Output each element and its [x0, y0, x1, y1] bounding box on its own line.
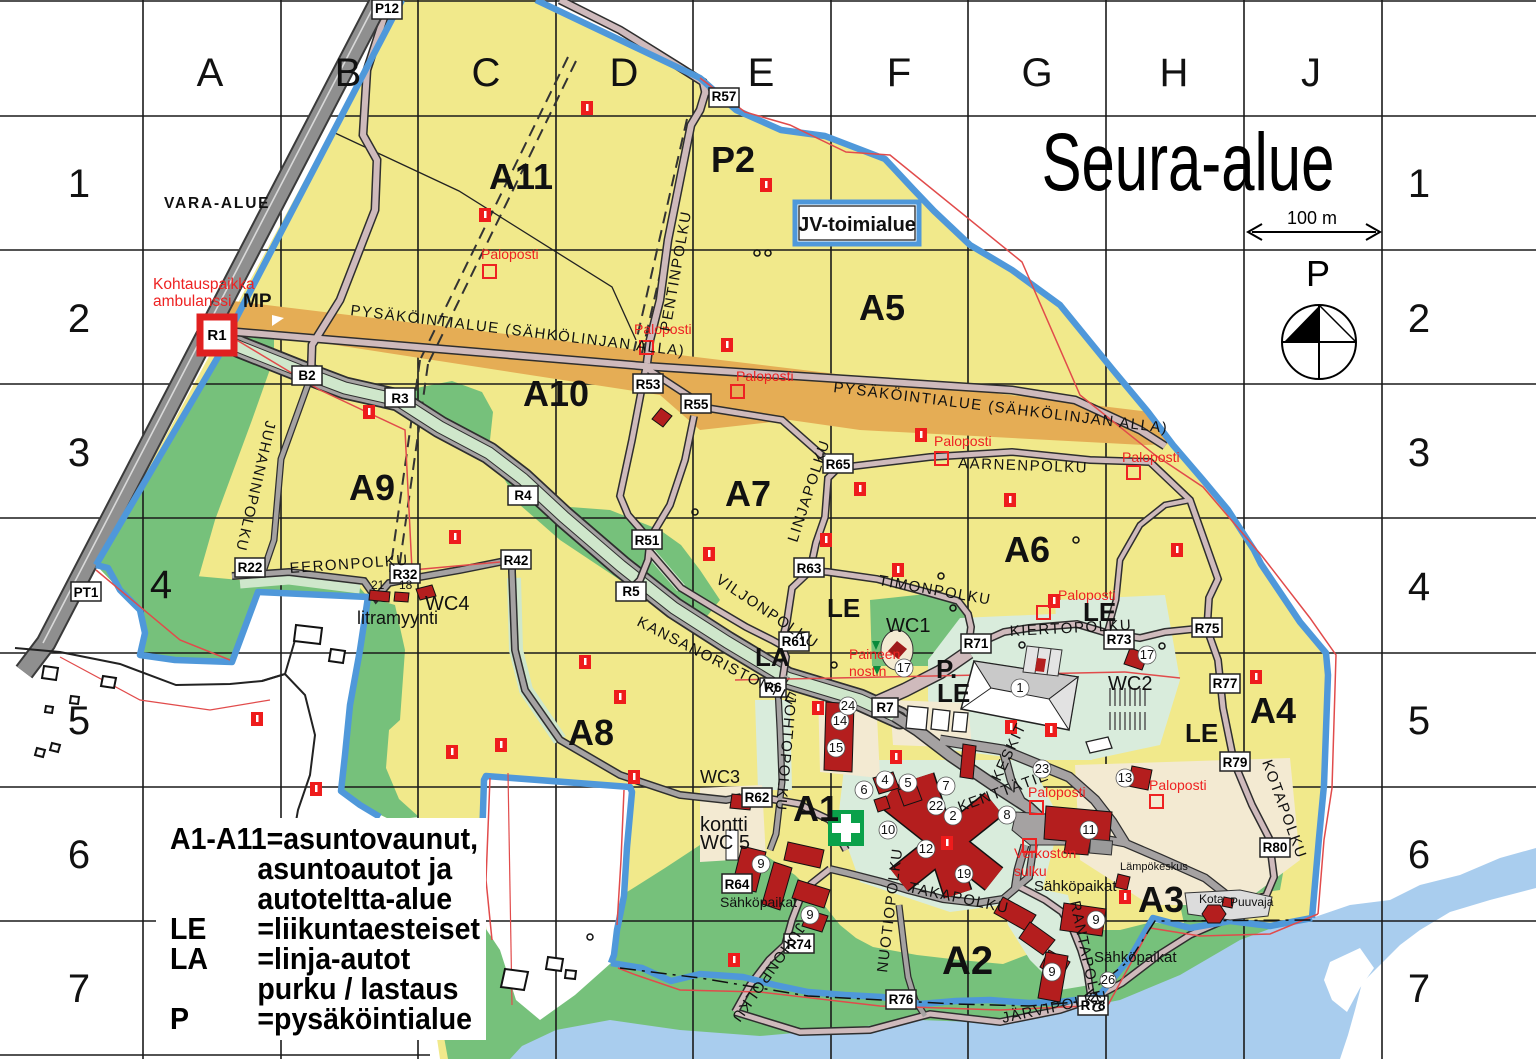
svg-text:6: 6 [68, 833, 90, 877]
svg-text:Lämpökeskus: Lämpökeskus [1120, 861, 1188, 873]
svg-text:B2: B2 [298, 368, 315, 383]
svg-text:2: 2 [1408, 297, 1430, 341]
svg-text:19: 19 [957, 866, 971, 881]
svg-text:JV-toimialue: JV-toimialue [798, 214, 916, 236]
svg-text:ambulanssi: ambulanssi [153, 293, 231, 310]
svg-text:7: 7 [1408, 967, 1430, 1011]
svg-text:kontti: kontti [700, 814, 748, 836]
svg-text:LA: LA [170, 942, 208, 976]
svg-text:1: 1 [1016, 680, 1023, 695]
svg-text:R79: R79 [1223, 755, 1248, 770]
svg-text:J: J [1301, 51, 1321, 95]
svg-text:VARA-ALUE: VARA-ALUE [164, 195, 270, 212]
svg-text:4: 4 [1408, 565, 1430, 609]
svg-text:R42: R42 [504, 553, 529, 568]
svg-text:4: 4 [881, 772, 888, 787]
svg-text:R63: R63 [797, 561, 822, 576]
svg-text:3: 3 [68, 431, 90, 475]
svg-text:22: 22 [929, 798, 943, 813]
svg-text:Kota: Kota [1199, 892, 1224, 906]
svg-text:R75: R75 [1195, 621, 1220, 636]
svg-text:nostin: nostin [849, 663, 886, 679]
svg-text:7: 7 [68, 967, 90, 1011]
svg-text:8: 8 [1003, 807, 1010, 822]
svg-text:LE: LE [1185, 718, 1218, 748]
svg-text:12: 12 [919, 841, 933, 856]
svg-text:15: 15 [829, 740, 843, 755]
svg-text:H: H [1160, 51, 1189, 95]
svg-text:100 m: 100 m [1287, 208, 1337, 228]
svg-text:Paloposti: Paloposti [736, 368, 794, 384]
svg-text:R80: R80 [1263, 840, 1288, 855]
svg-text:R22: R22 [238, 560, 263, 575]
svg-text:Paloposti: Paloposti [1122, 449, 1180, 465]
svg-text:R62: R62 [745, 790, 770, 805]
svg-text:A: A [197, 51, 224, 95]
svg-text:Sähköpaikat: Sähköpaikat [1034, 878, 1117, 895]
svg-text:6: 6 [1408, 833, 1430, 877]
svg-text:6: 6 [860, 782, 867, 797]
svg-text:Paineen: Paineen [849, 646, 900, 662]
svg-text:5: 5 [1408, 699, 1430, 743]
svg-text:Paloposti: Paloposti [1149, 777, 1207, 793]
svg-text:C: C [472, 51, 501, 95]
svg-text:18: 18 [399, 578, 413, 592]
svg-text:E: E [748, 51, 775, 95]
svg-text:R76: R76 [889, 992, 914, 1007]
svg-text:2: 2 [68, 297, 90, 341]
svg-text:A7: A7 [725, 473, 771, 514]
svg-text:D: D [610, 51, 639, 95]
svg-text:Verkoston: Verkoston [1014, 845, 1076, 861]
svg-text:sulku: sulku [1014, 863, 1047, 879]
svg-text:Puuvaja: Puuvaja [1230, 895, 1274, 909]
svg-text:A2: A2 [942, 939, 993, 983]
svg-text:Paloposti: Paloposti [934, 433, 992, 449]
svg-text:9: 9 [1092, 912, 1099, 927]
svg-text:Sähköpaikat: Sähköpaikat [1094, 949, 1177, 966]
svg-text:A11: A11 [489, 156, 553, 197]
svg-text:LE: LE [827, 593, 860, 623]
svg-text:A1: A1 [793, 788, 839, 829]
svg-text:2: 2 [949, 808, 956, 823]
svg-text:9: 9 [1048, 964, 1055, 979]
svg-text:1: 1 [1408, 162, 1430, 206]
svg-text:5: 5 [68, 699, 90, 743]
svg-text:R64: R64 [725, 877, 750, 892]
svg-text:PT1: PT1 [74, 585, 99, 600]
svg-text:F: F [887, 51, 911, 95]
svg-text:WC3: WC3 [700, 767, 740, 787]
svg-text:P: P [1306, 253, 1330, 294]
svg-text:R7: R7 [876, 700, 893, 715]
svg-text:9: 9 [806, 907, 813, 922]
svg-text:11: 11 [1082, 822, 1096, 837]
svg-text:17: 17 [1140, 647, 1154, 662]
svg-text:=pysäköintialue: =pysäköintialue [257, 1002, 472, 1036]
svg-text:A8: A8 [568, 712, 614, 753]
svg-text:Paloposti: Paloposti [481, 246, 539, 262]
svg-text:Sähköpaikat: Sähköpaikat [720, 894, 797, 910]
svg-text:13: 13 [1118, 770, 1132, 785]
svg-text:A6: A6 [1004, 529, 1050, 570]
svg-text:24: 24 [841, 698, 855, 713]
svg-text:R51: R51 [635, 533, 660, 548]
svg-text:P: P [170, 1002, 189, 1036]
svg-text:P12: P12 [375, 1, 399, 16]
svg-text:LA: LA [755, 642, 790, 672]
svg-text:A10: A10 [523, 373, 589, 414]
svg-text:R4: R4 [514, 488, 532, 503]
svg-text:17: 17 [897, 660, 911, 675]
svg-text:10: 10 [881, 822, 895, 837]
svg-text:7: 7 [942, 778, 949, 793]
svg-text:Kohtauspaikka: Kohtauspaikka [153, 276, 255, 293]
svg-text:P2: P2 [711, 139, 755, 180]
svg-text:MP: MP [243, 291, 272, 312]
svg-text:WC2: WC2 [1108, 673, 1152, 695]
svg-text:23: 23 [1035, 761, 1049, 776]
svg-text:A5: A5 [859, 287, 905, 328]
svg-text:R55: R55 [684, 397, 709, 412]
svg-text:5: 5 [904, 775, 911, 790]
svg-text:R3: R3 [391, 391, 409, 406]
svg-text:A3: A3 [1138, 879, 1184, 920]
svg-text:21: 21 [371, 578, 385, 592]
svg-text:26: 26 [1101, 972, 1115, 987]
svg-text:Seura-alue: Seura-alue [1042, 117, 1335, 208]
svg-text:WC1: WC1 [886, 615, 930, 637]
svg-text:B: B [335, 51, 362, 95]
svg-text:R57: R57 [712, 89, 737, 104]
svg-text:R77: R77 [1213, 676, 1238, 691]
svg-text:A9: A9 [349, 467, 395, 508]
svg-text:R1: R1 [207, 327, 226, 344]
svg-text:14: 14 [833, 713, 847, 728]
svg-text:R5: R5 [622, 584, 640, 599]
svg-text:R71: R71 [964, 636, 989, 651]
svg-text:1: 1 [68, 162, 90, 206]
svg-text:4: 4 [150, 563, 172, 607]
svg-text:A4: A4 [1250, 690, 1296, 731]
svg-text:R65: R65 [826, 457, 851, 472]
svg-text:9: 9 [757, 856, 764, 871]
svg-text:G: G [1021, 51, 1052, 95]
svg-text:P.: P. [936, 654, 957, 684]
svg-text:litramyynti: litramyynti [357, 608, 438, 628]
svg-text:R53: R53 [636, 377, 661, 392]
svg-text:3: 3 [1408, 431, 1430, 475]
